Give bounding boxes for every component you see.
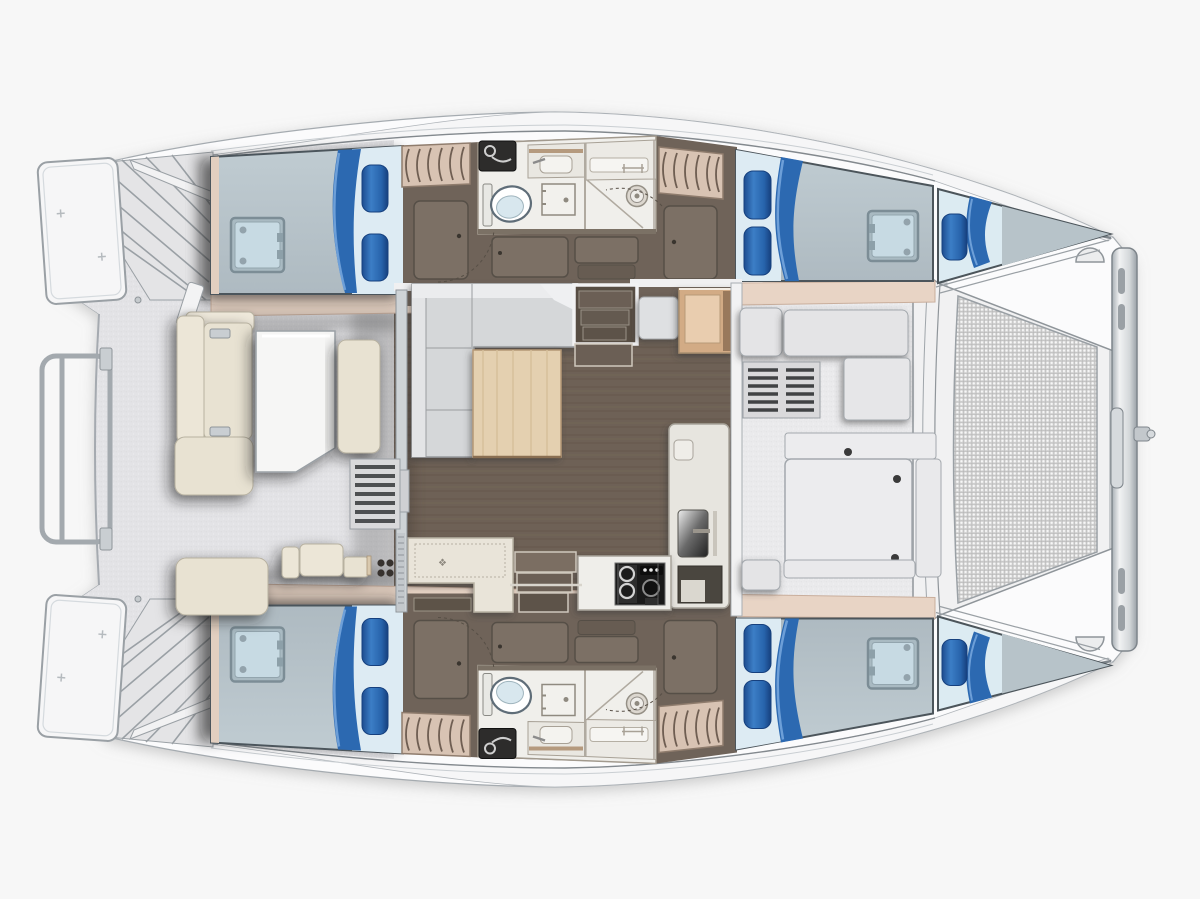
svg-text:❖: ❖ <box>438 558 447 569</box>
